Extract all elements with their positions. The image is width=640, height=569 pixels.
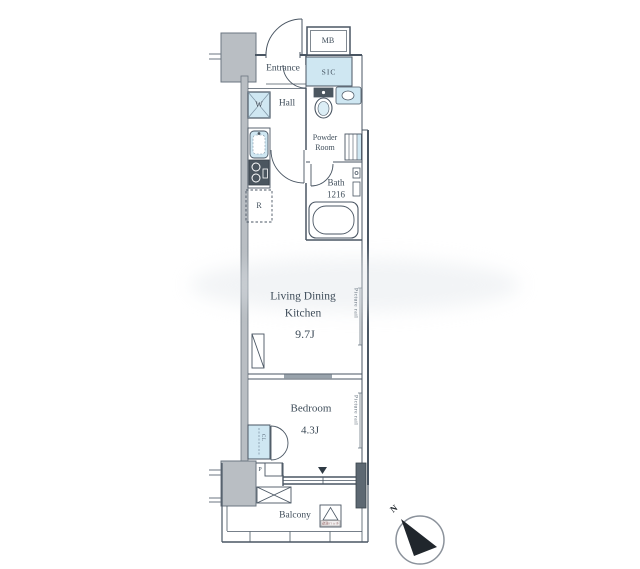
label-picture-rail-ldk: Picture rail bbox=[352, 288, 358, 348]
stove-icon bbox=[249, 160, 269, 185]
label-sic: SIC bbox=[322, 68, 337, 76]
balcony-divider bbox=[356, 463, 366, 508]
label-ldk-line2: Kitchen bbox=[285, 308, 321, 320]
closet-box bbox=[248, 425, 270, 459]
pillar-top bbox=[209, 33, 256, 82]
label-powder-line1: Powder bbox=[313, 134, 337, 142]
vanity-icon bbox=[336, 87, 361, 104]
label-bath-name: Bath bbox=[328, 179, 345, 188]
label-hall: Hall bbox=[279, 99, 295, 109]
room-divider-sliding-door bbox=[284, 375, 332, 379]
kitchen-sink-icon bbox=[250, 131, 268, 158]
hall-door-arc bbox=[271, 150, 304, 183]
bath-controls bbox=[353, 168, 360, 196]
linen-box bbox=[345, 134, 362, 160]
label-evacuation-hatch: 避難ハッチ bbox=[322, 522, 340, 526]
label-bedroom-name: Bedroom bbox=[291, 404, 332, 415]
label-powder-line2: Room bbox=[315, 144, 335, 152]
label-closet: CL bbox=[260, 434, 265, 454]
label-pipe: P bbox=[258, 467, 261, 473]
label-mb: MB bbox=[322, 37, 334, 45]
label-washer: W bbox=[255, 101, 263, 109]
label-ldk-line1: Living Dining bbox=[270, 291, 336, 303]
bedroom-window bbox=[283, 475, 362, 486]
label-bedroom-size: 4.3J bbox=[301, 426, 319, 437]
p-box bbox=[265, 463, 282, 476]
label-ldk-size: 9.7J bbox=[295, 328, 315, 340]
label-picture-rail-bedroom: Picture rail bbox=[352, 395, 358, 451]
ldk-cabinet bbox=[252, 334, 264, 368]
crossed-equipment-box bbox=[257, 487, 291, 503]
picture-rail-dimension-bedroom bbox=[358, 393, 362, 448]
floorplan-canvas: MB Entrance SIC Hall W Powder Room Bath … bbox=[0, 0, 640, 569]
label-balcony: Balcony bbox=[279, 511, 311, 521]
compass-icon bbox=[396, 516, 444, 564]
window-marker bbox=[318, 467, 327, 474]
label-bath-size: 1216 bbox=[327, 191, 345, 200]
entrance-door-arc bbox=[266, 19, 302, 55]
label-entrance: Entrance bbox=[266, 64, 300, 74]
bathtub-icon bbox=[309, 202, 358, 238]
toilet-icon bbox=[314, 88, 333, 118]
pillar-bottom bbox=[209, 461, 256, 506]
closet-bifold-doors bbox=[271, 426, 288, 460]
label-fridge: R bbox=[256, 202, 261, 210]
